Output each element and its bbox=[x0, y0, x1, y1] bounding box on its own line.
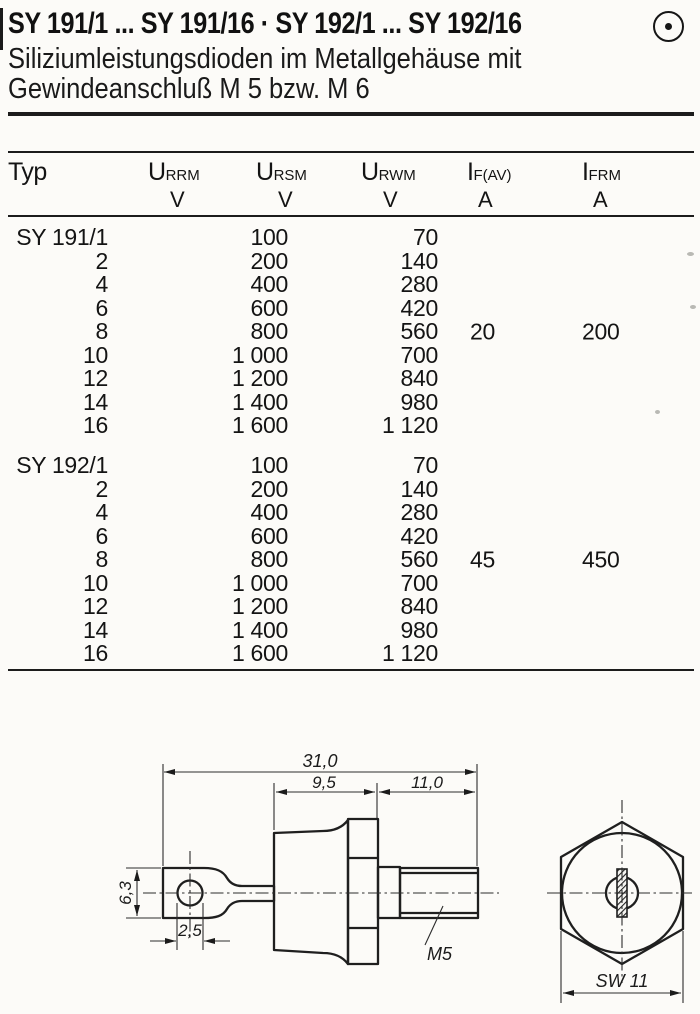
hex-flange bbox=[348, 819, 378, 964]
cell-urwm: 840 bbox=[288, 367, 438, 391]
table-row: 2200140 bbox=[0, 250, 700, 274]
if-av-value-sy191: 20 bbox=[470, 319, 495, 346]
subtitle-line-2: Gewindeanschluß M 5 bzw. M 6 bbox=[8, 74, 521, 104]
page-title: SY 191/1 ... SY 191/16 · SY 192/1 ... SY… bbox=[8, 7, 522, 41]
header-subscript: RRM bbox=[166, 167, 200, 184]
cell-urwm: 560 bbox=[288, 320, 438, 344]
divider-table-top bbox=[8, 151, 694, 153]
header-symbol: Typ bbox=[8, 158, 47, 186]
cell-typ: 14 bbox=[8, 391, 108, 415]
cell-urrm: 200 bbox=[108, 478, 288, 502]
header-unit: V bbox=[383, 187, 416, 213]
table-row: SY 192/110070 bbox=[0, 454, 700, 478]
circle-dot-icon bbox=[653, 11, 684, 42]
cell-typ: 10 bbox=[8, 572, 108, 596]
header-subscript: FRM bbox=[588, 167, 621, 184]
table-row: 101 000700 bbox=[0, 344, 700, 368]
cell-urrm: 400 bbox=[108, 273, 288, 297]
cell-typ: 6 bbox=[8, 525, 108, 549]
table-row: 141 400980 bbox=[0, 391, 700, 415]
divider-table-header bbox=[8, 215, 694, 217]
cell-typ: 12 bbox=[8, 595, 108, 619]
table-row: 121 200840 bbox=[0, 595, 700, 619]
divider-table-bottom bbox=[8, 669, 694, 671]
thread-label: M5 bbox=[427, 944, 453, 964]
cell-urrm: 1 400 bbox=[108, 391, 288, 415]
outline-drawing-side: 31,0 9,5 11,0 6,3 2,5 bbox=[116, 751, 499, 964]
cell-urrm: 100 bbox=[108, 226, 288, 250]
cell-typ: 4 bbox=[8, 501, 108, 525]
datasheet-page: SY 191/1 ... SY 191/16 · SY 192/1 ... SY… bbox=[0, 0, 700, 1014]
header-subscript: RSM bbox=[274, 167, 307, 184]
cell-typ: 14 bbox=[8, 619, 108, 643]
header-unit: V bbox=[278, 187, 307, 213]
table-row: 2200140 bbox=[0, 478, 700, 502]
wrench-size-label: SW 11 bbox=[596, 971, 649, 991]
table-row: SY 191/110070 bbox=[0, 226, 700, 250]
header-unit: A bbox=[593, 187, 621, 213]
table-row: 161 6001 120 bbox=[0, 642, 700, 666]
column-header-typ: Typ bbox=[8, 158, 47, 187]
table-row: 4400280 bbox=[0, 273, 700, 297]
dim-label-thread: 11,0 bbox=[411, 773, 443, 792]
cell-urrm: 1 600 bbox=[108, 642, 288, 666]
cell-urwm: 980 bbox=[288, 391, 438, 415]
cell-urrm: 1 000 bbox=[108, 572, 288, 596]
outline-drawings: 31,0 9,5 11,0 6,3 2,5 bbox=[0, 690, 700, 1014]
table-row: 6600420 bbox=[0, 297, 700, 321]
cell-urwm: 420 bbox=[288, 297, 438, 321]
diode-body bbox=[274, 820, 348, 964]
header-symbol: U bbox=[148, 158, 166, 186]
dim-label-tab-height: 6,3 bbox=[116, 881, 135, 905]
cell-urrm: 1 400 bbox=[108, 619, 288, 643]
cell-typ: 6 bbox=[8, 297, 108, 321]
cell-urrm: 1 200 bbox=[108, 367, 288, 391]
ifrm-value-sy192: 450 bbox=[582, 547, 619, 574]
if-av-value-sy192: 45 bbox=[470, 547, 495, 574]
table-block-sy192: SY 192/110070220014044002806600420880056… bbox=[0, 454, 700, 666]
table-row: 4400280 bbox=[0, 501, 700, 525]
cell-urrm: 800 bbox=[108, 320, 288, 344]
divider-top bbox=[8, 112, 694, 116]
cell-typ: SY 191/1 bbox=[8, 226, 108, 250]
cell-typ: 2 bbox=[8, 478, 108, 502]
column-header-urrm: URRM V bbox=[148, 158, 200, 213]
cell-urwm: 280 bbox=[288, 501, 438, 525]
dim-label-case: 9,5 bbox=[312, 773, 336, 792]
header-unit: V bbox=[170, 187, 200, 213]
table-row: 6600420 bbox=[0, 525, 700, 549]
cell-typ: 8 bbox=[8, 548, 108, 572]
cell-urrm: 800 bbox=[108, 548, 288, 572]
cell-typ: SY 192/1 bbox=[8, 454, 108, 478]
cell-typ: 16 bbox=[8, 414, 108, 438]
table-header-row: Typ URRM V URSM V URWM V IF(AV) A IFRM A bbox=[0, 158, 700, 214]
scan-speck bbox=[655, 410, 660, 414]
header-subscript: F(AV) bbox=[473, 167, 511, 184]
header-subscript: RWM bbox=[379, 167, 416, 184]
column-header-ifrm: IFRM A bbox=[582, 158, 621, 213]
cell-urrm: 600 bbox=[108, 525, 288, 549]
cell-urwm: 1 120 bbox=[288, 414, 438, 438]
table-row: 141 400980 bbox=[0, 619, 700, 643]
cell-urrm: 1 600 bbox=[108, 414, 288, 438]
header-symbol: U bbox=[361, 158, 379, 186]
cell-urwm: 140 bbox=[288, 250, 438, 274]
dim-label-total: 31,0 bbox=[302, 751, 337, 771]
cell-typ: 12 bbox=[8, 367, 108, 391]
table-row: 101 000700 bbox=[0, 572, 700, 596]
ifrm-value-sy191: 200 bbox=[582, 319, 619, 346]
cell-typ: 10 bbox=[8, 344, 108, 368]
column-header-ifav: IF(AV) A bbox=[467, 158, 512, 213]
cell-urrm: 200 bbox=[108, 250, 288, 274]
table-row: 121 200840 bbox=[0, 367, 700, 391]
dim-label-hole: 2,5 bbox=[177, 921, 202, 940]
scan-edge-artifact bbox=[0, 8, 3, 50]
header-symbol: U bbox=[256, 158, 274, 186]
circle-dot-icon-center bbox=[665, 23, 672, 30]
cell-urwm: 280 bbox=[288, 273, 438, 297]
cell-urrm: 1 000 bbox=[108, 344, 288, 368]
cell-urwm: 70 bbox=[288, 226, 438, 250]
cell-typ: 2 bbox=[8, 250, 108, 274]
cell-typ: 8 bbox=[8, 320, 108, 344]
cell-urwm: 700 bbox=[288, 344, 438, 368]
cell-urwm: 700 bbox=[288, 572, 438, 596]
header-unit: A bbox=[478, 187, 512, 213]
cell-urwm: 560 bbox=[288, 548, 438, 572]
cell-urrm: 400 bbox=[108, 501, 288, 525]
scan-speck bbox=[690, 305, 696, 309]
cell-urwm: 980 bbox=[288, 619, 438, 643]
table-block-sy191: SY 191/110070220014044002806600420880056… bbox=[0, 226, 700, 438]
cell-typ: 16 bbox=[8, 642, 108, 666]
cell-urrm: 600 bbox=[108, 297, 288, 321]
outline-drawing-front: SW 11 bbox=[547, 800, 692, 1003]
cell-urwm: 840 bbox=[288, 595, 438, 619]
scan-speck bbox=[687, 252, 694, 256]
cell-typ: 4 bbox=[8, 273, 108, 297]
cell-urrm: 1 200 bbox=[108, 595, 288, 619]
table-row: 161 6001 120 bbox=[0, 414, 700, 438]
cell-urwm: 70 bbox=[288, 454, 438, 478]
cell-urwm: 420 bbox=[288, 525, 438, 549]
page-subtitle: Siliziumleistungsdioden im Metallgehäuse… bbox=[8, 44, 521, 104]
column-header-urwm: URWM V bbox=[361, 158, 416, 213]
column-header-ursm: URSM V bbox=[256, 158, 307, 213]
subtitle-line-1: Siliziumleistungsdioden im Metallgehäuse… bbox=[8, 44, 521, 74]
cell-urwm: 140 bbox=[288, 478, 438, 502]
cell-urwm: 1 120 bbox=[288, 642, 438, 666]
cell-urrm: 100 bbox=[108, 454, 288, 478]
